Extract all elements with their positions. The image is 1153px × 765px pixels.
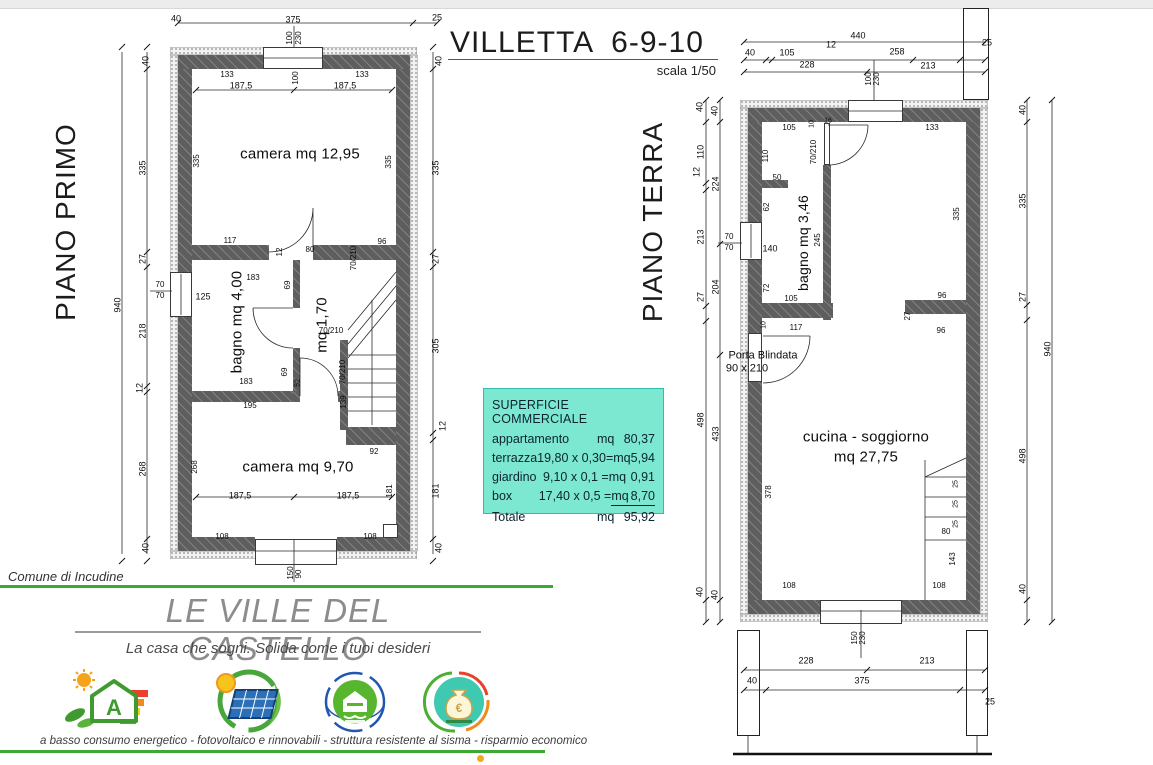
row-unit: mq: [613, 451, 630, 467]
row-label: appartamento: [492, 432, 556, 448]
row-value: 95,92: [619, 510, 655, 526]
row-value: 80,37: [619, 432, 655, 448]
dim-label: 40: [435, 543, 444, 553]
dim-label: 40: [747, 677, 757, 686]
dim-label: 40: [1019, 105, 1028, 115]
row-unit: mq: [611, 489, 628, 506]
dim-label: 940: [1044, 341, 1053, 356]
dim-label: 187,5: [337, 492, 360, 501]
row-formula: 17,40 x 0,5 =: [539, 489, 612, 506]
dim-label: 70/210: [810, 140, 818, 164]
dim-label: 335: [432, 160, 441, 175]
dim-label: 25: [432, 14, 442, 23]
photovoltaic-icon: [203, 668, 293, 739]
dim-label: 213: [697, 229, 706, 244]
dim-label: 80: [306, 246, 315, 254]
row-formula: [556, 510, 597, 526]
dim-label: 96: [938, 292, 947, 300]
dim-label: 90: [295, 570, 303, 579]
dim-label: 204: [712, 279, 721, 294]
dim-label: 268: [191, 460, 199, 473]
room-label: cucina - soggiorno: [803, 430, 929, 445]
dim-label: 40: [171, 15, 181, 24]
dim-label: 69: [281, 368, 289, 377]
room-label: mq 1,70: [315, 297, 330, 353]
dim-label: 52: [295, 379, 302, 387]
surface-table: SUPERFICIE COMMERCIALE appartamento mq 8…: [483, 388, 664, 514]
dim-label: 96: [378, 238, 387, 246]
dim-label: 12: [136, 383, 145, 393]
room-label: camera mq 12,95: [240, 147, 360, 162]
dim-label: 40: [745, 49, 755, 58]
dim-label: 10: [809, 120, 816, 128]
room-label: bagno mq 3,46: [796, 195, 810, 291]
dim-label: 70: [156, 281, 165, 289]
badges-caption: a basso consumo energetico - fotovoltaic…: [40, 735, 546, 747]
dim-label: 268: [139, 461, 148, 476]
dim-label: 125: [195, 293, 210, 302]
row-unit: mq: [609, 470, 627, 486]
surface-row: box 17,40 x 0,5 = mq 8,70: [492, 489, 655, 506]
seismic-resistant-icon: [316, 670, 394, 739]
dim-label: 335: [953, 207, 961, 220]
dim-label: 187,5: [229, 492, 252, 501]
row-label: giardino: [492, 470, 543, 486]
dim-label: 40: [696, 102, 705, 112]
dim-label: 40: [142, 543, 151, 553]
dim-label: 213: [920, 62, 935, 71]
dim-label: 10: [761, 321, 768, 329]
dim-label: 105: [779, 49, 794, 58]
dim-label: 92: [370, 448, 379, 456]
dim-label: 27: [139, 254, 148, 264]
dim-label: 27: [904, 312, 912, 321]
dim-label: 940: [114, 297, 123, 312]
dim-label: 108: [782, 582, 795, 590]
svg-text:A: A: [106, 695, 122, 720]
row-value: 0,91: [626, 470, 655, 486]
dim-label: 498: [697, 412, 706, 427]
dim-label: 25: [953, 520, 960, 528]
dim-label: 440: [850, 32, 865, 41]
dim-label: 258: [889, 48, 904, 57]
dim-label: 40: [142, 56, 151, 66]
dim-label: 40: [711, 590, 720, 600]
dim-label: 27: [432, 254, 441, 264]
dim-label: 498: [1019, 448, 1028, 463]
dim-label: 108: [932, 582, 945, 590]
dim-label: 16: [824, 118, 832, 125]
brand-rule: [75, 631, 481, 633]
dim-label: 62: [763, 203, 771, 212]
dim-label: 110: [697, 145, 706, 159]
surface-row: Totale mq 95,92: [492, 510, 655, 526]
dim-label: 228: [798, 657, 813, 666]
dim-label: 108: [215, 533, 228, 541]
dim-label: 183: [246, 274, 259, 282]
dim-label: 70/210: [350, 246, 358, 270]
row-formula: 19,80 x 0,30=: [537, 451, 613, 467]
dim-label: 187,5: [334, 82, 357, 91]
dim-label: 335: [385, 155, 393, 168]
economic-saving-icon: €: [422, 670, 496, 739]
green-rule-bottom: [0, 750, 545, 753]
dim-label: 433: [712, 426, 721, 441]
surface-table-title: SUPERFICIE COMMERCIALE: [492, 398, 655, 426]
dim-label: 187,5: [230, 82, 253, 91]
surface-row: appartamento mq 80,37: [492, 432, 655, 448]
dim-label: 27: [697, 292, 706, 302]
dim-label: 133: [220, 71, 233, 79]
dim-label: 218: [139, 323, 148, 338]
row-label: terrazza: [492, 451, 537, 467]
dim-label: 139: [340, 395, 348, 408]
dim-label: 25: [953, 480, 960, 488]
dim-label: Porta Blindata: [728, 351, 797, 362]
dim-label: 140: [762, 245, 777, 254]
floorplan-sheet: VILLETTA 6-9-10 scala 1/50 PIANO PRIMO P…: [0, 0, 1153, 765]
dim-label: 230: [873, 72, 881, 85]
row-formula: [556, 432, 597, 448]
dim-label: 27: [1019, 292, 1028, 302]
dim-label: 70/210: [339, 360, 347, 384]
dim-label: 228: [799, 61, 814, 70]
dim-label: 117: [790, 324, 803, 332]
dim-label: 305: [432, 338, 441, 353]
dim-label: 40: [696, 587, 705, 597]
dim-label: 133: [355, 71, 368, 79]
brand-tagline: La casa che sogni. Solida come i tuoi de…: [75, 640, 481, 657]
dim-label: 213: [919, 657, 934, 666]
dim-label: 100: [286, 31, 294, 44]
room-label: mq 27,75: [834, 450, 898, 465]
dim-label: 117: [224, 237, 237, 245]
green-rule-top: [0, 585, 553, 588]
dim-label: 224: [712, 176, 721, 191]
dim-label: 70: [725, 233, 734, 241]
dim-label: 25: [982, 39, 992, 48]
row-unit: mq: [597, 510, 619, 526]
row-label: box: [492, 489, 539, 506]
dim-label: 50: [773, 174, 782, 182]
dim-label: 230: [295, 31, 303, 44]
room-label: bagno mq 4,00: [230, 271, 245, 374]
dim-label: 25: [953, 500, 960, 508]
dim-label: 40: [711, 106, 720, 116]
dim-label: 335: [193, 154, 201, 167]
dim-label: 105: [784, 295, 797, 303]
dim-label: 12: [439, 421, 448, 431]
energy-class-a-icon: A: [62, 668, 162, 737]
dim-label: 110: [762, 150, 770, 163]
dim-label: 335: [139, 160, 148, 175]
dim-label: 245: [814, 233, 822, 246]
room-label: camera mq 9,70: [242, 460, 353, 475]
dim-label: 90 x 210: [726, 364, 768, 375]
dim-label: 12: [693, 167, 702, 177]
dim-label: 143: [949, 552, 957, 565]
row-value: 8,70: [629, 489, 655, 506]
dim-label: 335: [1019, 193, 1028, 208]
svg-text:€: €: [456, 701, 463, 715]
dim-label: 40: [1019, 584, 1028, 594]
orange-dot: [477, 755, 484, 762]
dim-label: 375: [285, 16, 300, 25]
dim-label: 230: [859, 631, 867, 644]
row-formula: 9,10 x 0,1 =: [543, 470, 609, 486]
dim-label: 80: [942, 528, 951, 536]
dim-label: 70/210: [319, 327, 343, 335]
dim-label: 181: [386, 484, 394, 497]
dim-label: 72: [763, 284, 771, 293]
dim-label: 183: [239, 378, 252, 386]
surface-row: giardino 9,10 x 0,1 = mq 0,91: [492, 470, 655, 486]
dim-label: 40: [435, 56, 444, 66]
dim-label: 69: [284, 281, 292, 290]
dim-label: 105: [782, 124, 795, 132]
dim-label: 70: [725, 244, 734, 252]
dim-label: 12: [276, 248, 284, 257]
dim-label: 181: [432, 483, 441, 498]
dim-label: 195: [243, 402, 256, 410]
dim-label: 12: [826, 41, 836, 50]
dim-label: 25: [985, 698, 995, 707]
surface-row: terrazza 19,80 x 0,30= mq 5,94: [492, 451, 655, 467]
row-unit: mq: [597, 432, 619, 448]
row-label: Totale: [492, 510, 556, 526]
dim-label: 378: [765, 485, 773, 498]
dim-label: 96: [937, 327, 946, 335]
dim-label: 375: [854, 677, 869, 686]
dim-label: 100: [292, 71, 300, 84]
dim-label: 70: [156, 292, 165, 300]
dim-label: 108: [363, 533, 376, 541]
dim-label: 133: [925, 124, 938, 132]
row-value: 5,94: [631, 451, 655, 467]
